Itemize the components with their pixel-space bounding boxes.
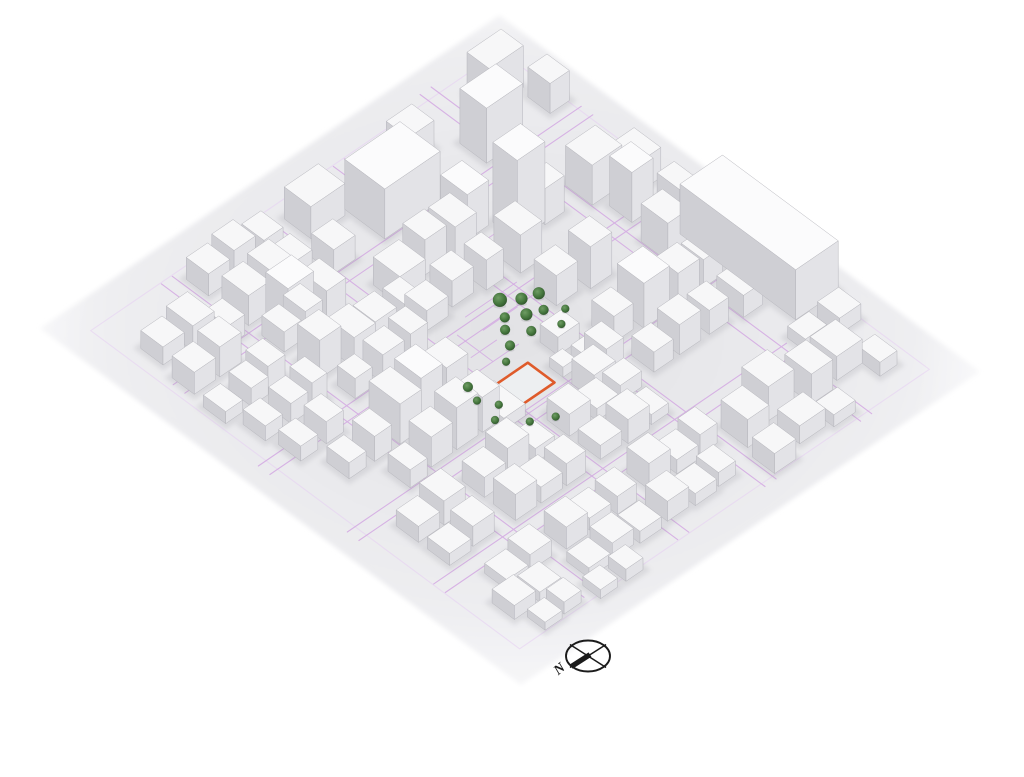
city-model-stage: N	[0, 0, 1024, 777]
city-model-svg: N	[0, 0, 1024, 777]
edge-fade-overlay	[0, 0, 1024, 777]
